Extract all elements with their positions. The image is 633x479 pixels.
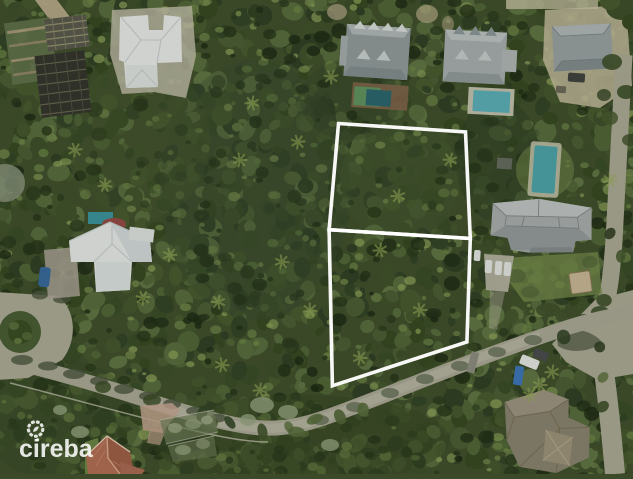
svg-text:cireba: cireba xyxy=(19,435,94,463)
